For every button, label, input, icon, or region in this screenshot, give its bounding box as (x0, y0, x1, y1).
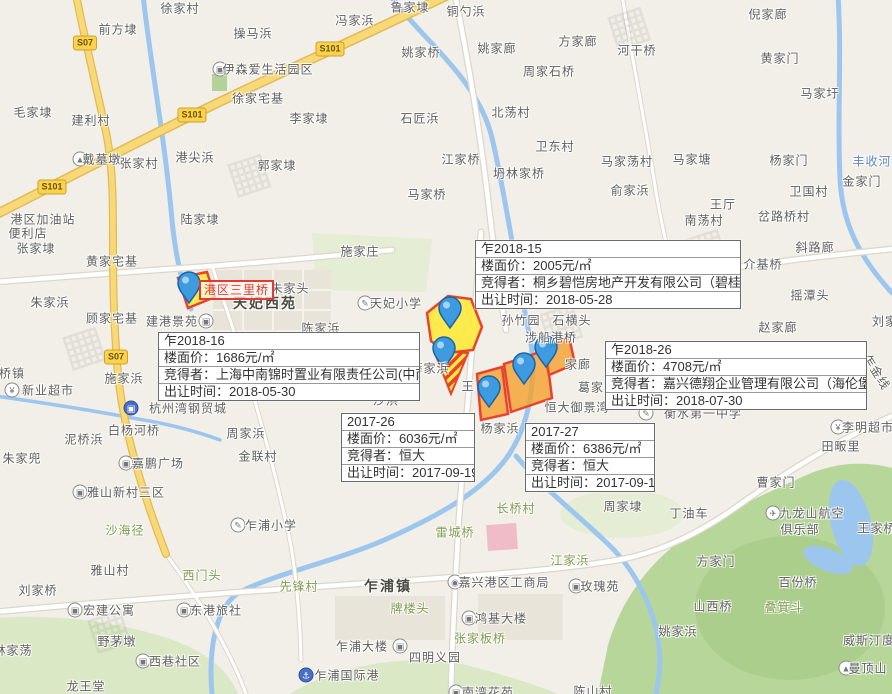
map-label-place: 九龙山航空 (779, 505, 844, 522)
map-label-place: 建利村 (71, 112, 110, 129)
road-badge: S101 (177, 108, 206, 123)
floor-price-row: 楼面价：6386元/㎡ (526, 441, 654, 458)
overlay-layer: ▦▦▦▦▦▦徐家村前方埭操马浜冯家浜鲁家埭铜勺浜姚家桥姚家廊方家廊周家石桥倪家廊… (0, 0, 892, 694)
map-label-place: 孙竹园 (501, 312, 540, 329)
floor-price-value: 6036元/㎡ (399, 431, 458, 446)
map-label-place: 河干桥 (617, 42, 656, 59)
floor-price-value: 6386元/㎡ (583, 441, 642, 456)
area-label-red: 港区三里桥 (199, 280, 274, 300)
winner-label: 竞得者： (531, 458, 583, 473)
info-box-乍2018-16: 乍2018-16楼面价：1686元/㎡竞得者：上海中南锦时置业有限责任公司(中南… (158, 332, 420, 401)
map-label-place: 徐家村 (160, 0, 199, 17)
map-label-place: 陈山村 (573, 683, 612, 694)
map-label-place: 鸿基大楼 (475, 610, 527, 627)
building-icon[interactable]: ▣ (199, 314, 214, 329)
map-label-place: 毛家埭 (13, 104, 52, 121)
map-label-place: 龙王堂 (66, 678, 105, 694)
plot-id-value: 乍2018-16 (164, 333, 225, 348)
map-canvas[interactable]: ▦▦▦▦▦▦徐家村前方埭操马浜冯家浜鲁家埭铜勺浜姚家桥姚家廊方家廊周家石桥倪家廊… (0, 0, 892, 694)
map-label-place: 东港旅社 (190, 602, 242, 619)
sale-date-value: 2018-07-30 (676, 393, 743, 408)
winner-label: 竞得者： (611, 376, 663, 391)
floor-price-label: 楼面价： (164, 350, 216, 365)
map-label-place: 卫东村 (535, 138, 574, 155)
map-label-place: 金家门 (842, 173, 881, 190)
map-label-place: 王家桥 (857, 520, 892, 537)
map-label-place: 郭家埭 (257, 157, 296, 174)
anchor-icon[interactable]: ⚓ (299, 668, 314, 683)
map-label-place: 丁油车 (669, 505, 708, 522)
map-label-place: 倪家廊 (748, 6, 787, 23)
shop-icon[interactable]: ¥ (5, 383, 20, 398)
map-label-place: 前方埭 (98, 21, 137, 38)
map-label-place: 马家桥 (407, 186, 446, 203)
map-label-place: 天妃小学 (370, 295, 422, 312)
sale-date-row: 出让时间：2018-07-30 (606, 393, 866, 409)
floor-price-row: 楼面价：6036元/㎡ (342, 431, 474, 448)
map-label-place: 刘家桥 (18, 582, 57, 599)
info-box-2017-27: 2017-27楼面价：6386元/㎡竞得者：恒大出让时间：2017-09-19 (525, 423, 655, 492)
map-label-place: 卫国村 (789, 183, 828, 200)
map-label-place: 方家门 (696, 553, 735, 570)
map-label-place: 涉船港桥 (525, 329, 577, 346)
map-label-place: 施家庄 (340, 243, 379, 260)
map-label-place: 徐家宅基 (232, 90, 284, 107)
map-label-place: 嘉鹏广场 (132, 455, 184, 472)
sale-date-row: 出让时间：2018-05-28 (476, 292, 740, 308)
sale-date-row: 出让时间：2017-09-19 (342, 465, 474, 481)
sale-date-value: 2017-09-19 (412, 465, 474, 480)
map-label-place: 李家埭 (289, 110, 328, 127)
sale-date-label: 出让时间： (531, 475, 596, 490)
map-label-place: 朱家兜 (2, 450, 41, 467)
winner-row: 竞得者：嘉兴德翔企业管理有限公司（海伦堡） (606, 376, 866, 393)
sale-date-value: 2018-05-28 (546, 292, 613, 307)
plot-id-row: 乍2018-26 (606, 342, 866, 359)
map-label-place: 嘉兴港区工商局 (458, 574, 549, 591)
plot-id-value: 乍2018-26 (611, 342, 672, 357)
map-label-place: 马家荡村 (601, 153, 653, 170)
map-label-place: 山西桥 (693, 598, 732, 615)
map-label-place: 西巷社区 (149, 653, 201, 670)
building-icon[interactable]: ▣ (68, 603, 83, 618)
map-label-place: 张家埭 (16, 240, 55, 257)
map-label-green: 张家板桥 (454, 630, 506, 647)
map-label-place: 宏建公寓 (83, 602, 135, 619)
map-label-place: 南湾花苑 (462, 684, 514, 694)
winner-row: 竞得者：桐乡碧恺房地产开发有限公司（碧桂园） (476, 275, 740, 292)
winner-value: 桐乡碧恺房地产开发有限公司（碧桂园） (533, 275, 740, 290)
sale-date-label: 出让时间： (347, 465, 412, 480)
map-label-place: 赵家廊 (758, 319, 797, 336)
winner-value: 嘉兴德翔企业管理有限公司（海伦堡） (663, 376, 866, 391)
map-label-place: 戴墓墩 (82, 151, 121, 168)
map-label-place: 朱家浜 (30, 294, 69, 311)
map-label-place: 方家廊 (558, 33, 597, 50)
map-label-place: 顾家宅基 (86, 310, 138, 327)
map-label-place: 姚家廊 (477, 40, 516, 57)
plane-icon[interactable]: ✈ (766, 506, 781, 521)
sale-date-label: 出让时间： (164, 384, 229, 399)
map-label-place: 王 (461, 378, 474, 395)
floor-price-value: 1686元/㎡ (216, 350, 275, 365)
map-label-place: 马家圩 (800, 85, 839, 102)
floor-price-label: 楼面价： (611, 359, 663, 374)
map-label-place: 野茅墩 (97, 633, 136, 650)
map-label-place: 港尖浜 (175, 149, 214, 166)
map-label-place: 刘家 (872, 313, 892, 330)
floor-price-value: 2005元/㎡ (533, 258, 592, 273)
map-label-green: 长桥村 (496, 500, 535, 517)
floor-price-label: 楼面价： (347, 431, 399, 446)
map-label-place: 乍浦小学 (245, 517, 297, 534)
map-label-place: 桥镇 (0, 365, 25, 382)
map-label-place: 北荡村 (491, 104, 530, 121)
map-label-place: 岔路桥村 (758, 208, 810, 225)
map-label-place: 雅山村 (90, 562, 129, 579)
winner-row: 竞得者：上海中南锦时置业有限责任公司(中南） (159, 367, 419, 384)
floor-price-row: 楼面价：1686元/㎡ (159, 350, 419, 367)
map-label-place: 杭州湾钢贸城 (149, 400, 227, 417)
building-icon[interactable]: ▣ (393, 639, 408, 654)
map-label-green: 牌楼头 (390, 600, 429, 617)
plot-id-row: 乍2018-16 (159, 333, 419, 350)
map-label-place: 俞家浜 (610, 182, 649, 199)
floor-price-row: 楼面价：2005元/㎡ (476, 258, 740, 275)
map-label-place: 玫瑰苑 (580, 578, 619, 595)
map-label-place: 新业超市 (22, 382, 74, 399)
map-label-place: 黄家门 (760, 50, 799, 67)
plot-id-row: 乍2018-15 (476, 241, 740, 258)
winner-label: 竞得者： (481, 275, 533, 290)
map-label-green: 沙海径 (105, 522, 144, 539)
road-badge: S101 (315, 42, 344, 57)
road-badge: S101 (37, 180, 66, 195)
map-label-place: 摇潭头 (790, 287, 829, 304)
map-label-place: 杨家浜 (480, 420, 519, 437)
map-label-place: 马家塘 (672, 151, 711, 168)
map-label-place: 坍林家桥 (493, 165, 545, 182)
map-label-green: 雷城桥 (435, 524, 474, 541)
steel-icon[interactable]: ▣ (124, 401, 139, 416)
map-label-place: 石横头 (552, 312, 591, 329)
winner-value: 恒大 (399, 448, 425, 463)
map-label-place: 周家浜 (226, 425, 265, 442)
map-label-place: 冯家浜 (335, 12, 374, 29)
floor-price-label: 楼面价： (481, 258, 533, 273)
winner-label: 竞得者： (164, 367, 216, 382)
map-label-place: 铜勺浜 (446, 3, 485, 20)
map-label-place: 周家石桥 (523, 63, 575, 80)
map-label-place: 石匠浜 (400, 110, 439, 127)
plot-id-row: 2017-26 (342, 414, 474, 431)
map-label-place: 雅山新村三区 (87, 484, 165, 501)
map-label-place: 乍浦大楼 (336, 638, 388, 655)
sale-date-value: 2018-05-30 (229, 384, 296, 399)
winner-row: 竞得者：恒大 (526, 458, 654, 475)
map-label-place: 家廊 (565, 356, 591, 373)
map-label-place: 杨家门 (769, 152, 808, 169)
map-label-place: 施家浜 (104, 370, 143, 387)
map-label-green: 西门头 (182, 567, 221, 584)
floor-price-row: 楼面价：4708元/㎡ (606, 359, 866, 376)
winner-value: 上海中南锦时置业有限责任公司(中南） (216, 367, 419, 382)
winner-row: 竞得者：恒大 (342, 448, 474, 465)
map-label-place: 鲁家埭 (390, 0, 429, 16)
sale-date-row: 出让时间：2017-09-19 (526, 475, 654, 491)
map-label-place: 黄家宅基 (86, 253, 138, 270)
sale-date-row: 出让时间：2018-05-30 (159, 384, 419, 400)
road-badge: S07 (104, 350, 128, 365)
building-icon[interactable]: ▣ (73, 485, 88, 500)
map-label-place: 李明超市 (842, 419, 892, 436)
map-label-place: 百份桥 (778, 574, 817, 591)
plot-id-value: 2017-27 (531, 424, 579, 439)
map-label-water: 丰收河 (852, 153, 891, 170)
map-label-place: 江家桥 (441, 151, 480, 168)
map-label-place: 乍浦国际港 (314, 667, 379, 684)
map-label-green: 先锋村 (279, 578, 318, 595)
map-label-green: 叠箕斗 (764, 599, 803, 616)
map-label-place: 王厅 (710, 196, 736, 213)
map-label-place: 南荡村 (684, 212, 723, 229)
map-label-green: 江家浜 (550, 552, 589, 569)
map-label-place: 白杨河桥 (108, 422, 160, 439)
map-label-place: 曼顶山 (848, 660, 887, 677)
plot-id-value: 乍2018-15 (481, 241, 542, 256)
school-icon[interactable]: ✎ (231, 518, 246, 533)
map-label-place: 曹家门 (756, 474, 795, 491)
sale-date-label: 出让时间： (611, 393, 676, 408)
plot-id-row: 2017-27 (526, 424, 654, 441)
map-label-place: 伊森爱生活园区 (222, 61, 313, 78)
winner-label: 竞得者： (347, 448, 399, 463)
plot-id-value: 2017-26 (347, 414, 395, 429)
map-label-place: 张家村 (119, 155, 158, 172)
sale-date-value: 2017-09-19 (596, 475, 654, 490)
map-label-place: 介基桥 (743, 256, 782, 273)
map-label-place: 田畈里 (821, 438, 860, 455)
info-box-乍2018-15: 乍2018-15楼面价：2005元/㎡竞得者：桐乡碧恺房地产开发有限公司（碧桂园… (475, 240, 741, 309)
floor-price-value: 4708元/㎡ (663, 359, 722, 374)
map-label-place: 俱乐部 (780, 521, 819, 538)
sale-date-label: 出让时间： (481, 292, 546, 307)
map-label-place: 林家荡 (0, 642, 33, 659)
info-box-2017-26: 2017-26楼面价：6036元/㎡竞得者：恒大出让时间：2017-09-19 (341, 413, 475, 482)
map-label-place: 陆家埭 (180, 211, 219, 228)
map-label-place: 金联村 (238, 448, 277, 465)
map-label-place: 泥桥浜 (64, 431, 103, 448)
map-label-place: 姚家浜 (658, 623, 697, 640)
map-label-place: 周家埭 (603, 498, 642, 515)
map-label-place: 姚家桥 (401, 44, 440, 61)
map-label-town: 乍浦镇 (364, 576, 412, 596)
map-label-place: 威斯汀度 (843, 632, 892, 649)
road-badge: S07 (73, 36, 97, 51)
map-label-place: 恒大御景湾 (544, 399, 609, 416)
map-label-place: 斜路廊 (795, 239, 834, 256)
map-label-place: 葛家 (578, 379, 604, 396)
floor-price-label: 楼面价： (531, 441, 583, 456)
map-label-place: 操马浜 (233, 25, 272, 42)
map-label-place: 建港景苑 (146, 313, 198, 330)
winner-value: 恒大 (583, 458, 609, 473)
info-box-乍2018-26: 乍2018-26楼面价：4708元/㎡竞得者：嘉兴德翔企业管理有限公司（海伦堡）… (605, 341, 867, 410)
map-label-place: 四明义园 (409, 649, 461, 666)
